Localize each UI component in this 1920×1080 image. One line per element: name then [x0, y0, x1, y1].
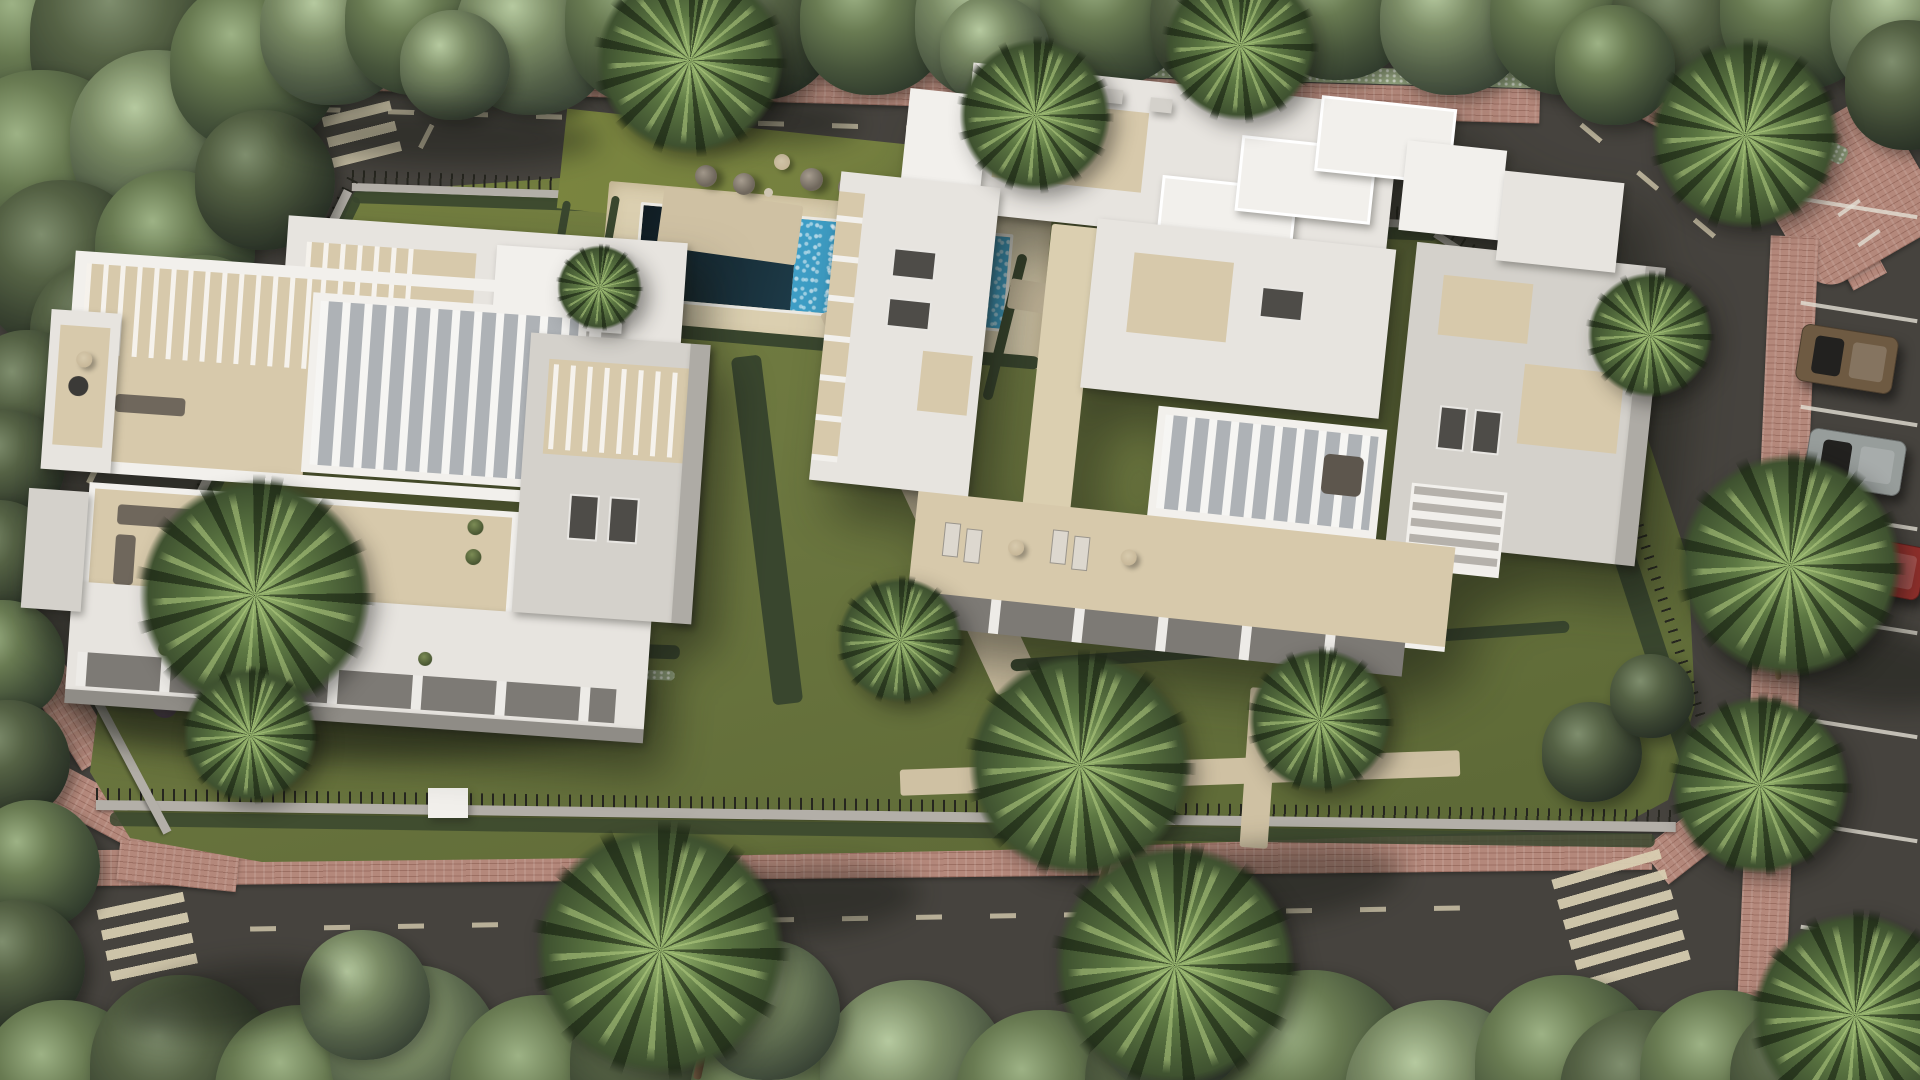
side-table	[764, 188, 773, 197]
palm-tree	[1240, 640, 1400, 800]
mid-courtyard	[1126, 252, 1234, 342]
palm-tree	[1660, 685, 1860, 885]
palm-tree	[1580, 265, 1720, 405]
lounge-pod	[733, 173, 755, 195]
pedestrian-gate-post	[428, 788, 468, 818]
lounge-set	[1320, 453, 1364, 497]
tree-canopy	[400, 10, 510, 120]
parking-line	[1800, 405, 1917, 427]
window	[1470, 409, 1502, 456]
palm-tree	[1640, 30, 1850, 240]
window	[567, 494, 600, 542]
window	[885, 297, 932, 331]
palm-tree	[950, 30, 1120, 200]
lounge-pod	[800, 168, 823, 191]
northeast-volume-1	[1398, 140, 1507, 240]
palm-tree	[1665, 440, 1915, 690]
west-courtyard	[917, 351, 973, 416]
palm-tree	[175, 660, 325, 810]
northeast-volume-2	[1496, 171, 1625, 273]
parasol	[774, 154, 790, 170]
palm-tree	[552, 240, 647, 335]
window	[1258, 286, 1305, 322]
palm-tree	[830, 570, 970, 710]
east-roof-terrace-1	[1438, 275, 1534, 344]
window	[607, 496, 640, 544]
parking-line	[1800, 301, 1917, 323]
window	[1436, 405, 1468, 452]
east-pergola	[548, 364, 684, 458]
lounge-pod	[695, 165, 717, 187]
aerial-render	[0, 0, 1920, 1080]
window	[891, 247, 938, 281]
rooftop-unit	[1149, 97, 1172, 113]
building-west	[32, 190, 828, 782]
palm-tree	[520, 810, 800, 1080]
southwest-volume	[21, 488, 89, 612]
